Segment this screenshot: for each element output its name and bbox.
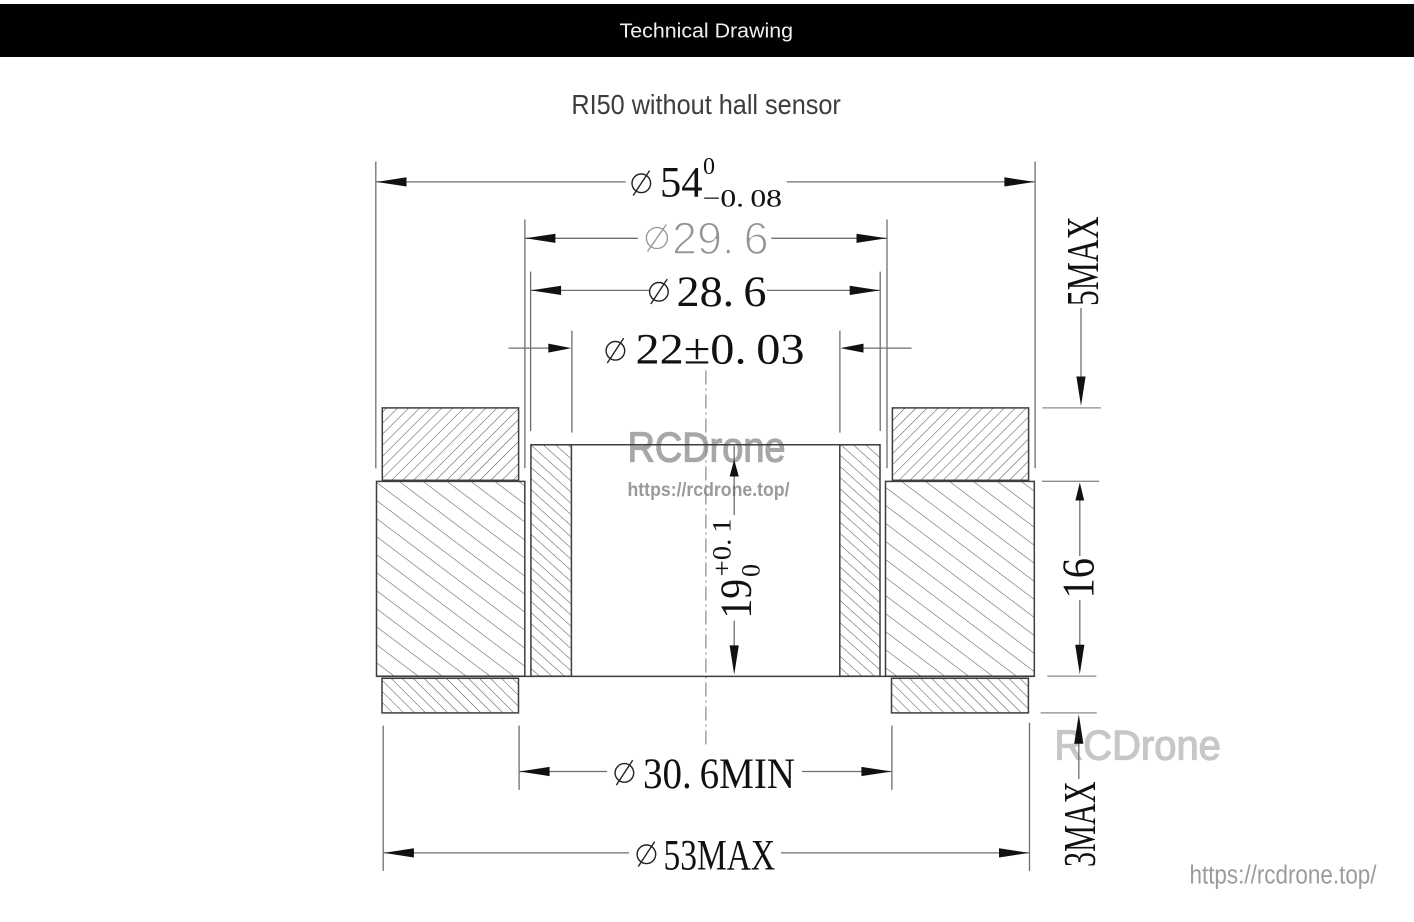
svg-text:22±0. 03: 22±0. 03 — [636, 326, 805, 373]
svg-text:https://rcdrone.top/: https://rcdrone.top/ — [628, 479, 791, 501]
svg-text:3MAX: 3MAX — [1054, 782, 1105, 868]
svg-text:5MAX: 5MAX — [1057, 217, 1108, 307]
svg-text:https://rcdrone.top/: https://rcdrone.top/ — [1190, 862, 1378, 890]
svg-text:30. 6MIN: 30. 6MIN — [643, 751, 795, 798]
svg-text:53MAX: 53MAX — [664, 832, 776, 879]
svg-text:19: 19 — [712, 579, 761, 619]
svg-text:+0. 1: +0. 1 — [708, 519, 737, 577]
svg-text:16: 16 — [1053, 558, 1104, 599]
svg-text:0: 0 — [703, 154, 715, 180]
svg-text:28. 6: 28. 6 — [677, 269, 767, 316]
svg-text:Technical Drawing: Technical Drawing — [620, 20, 794, 42]
svg-text:0: 0 — [736, 564, 765, 577]
svg-text:−0. 08: −0. 08 — [703, 186, 783, 213]
svg-text:29. 6: 29. 6 — [672, 213, 769, 264]
svg-text:RI50 without hall sensor: RI50 without hall sensor — [571, 89, 841, 120]
svg-text:54: 54 — [660, 159, 703, 206]
